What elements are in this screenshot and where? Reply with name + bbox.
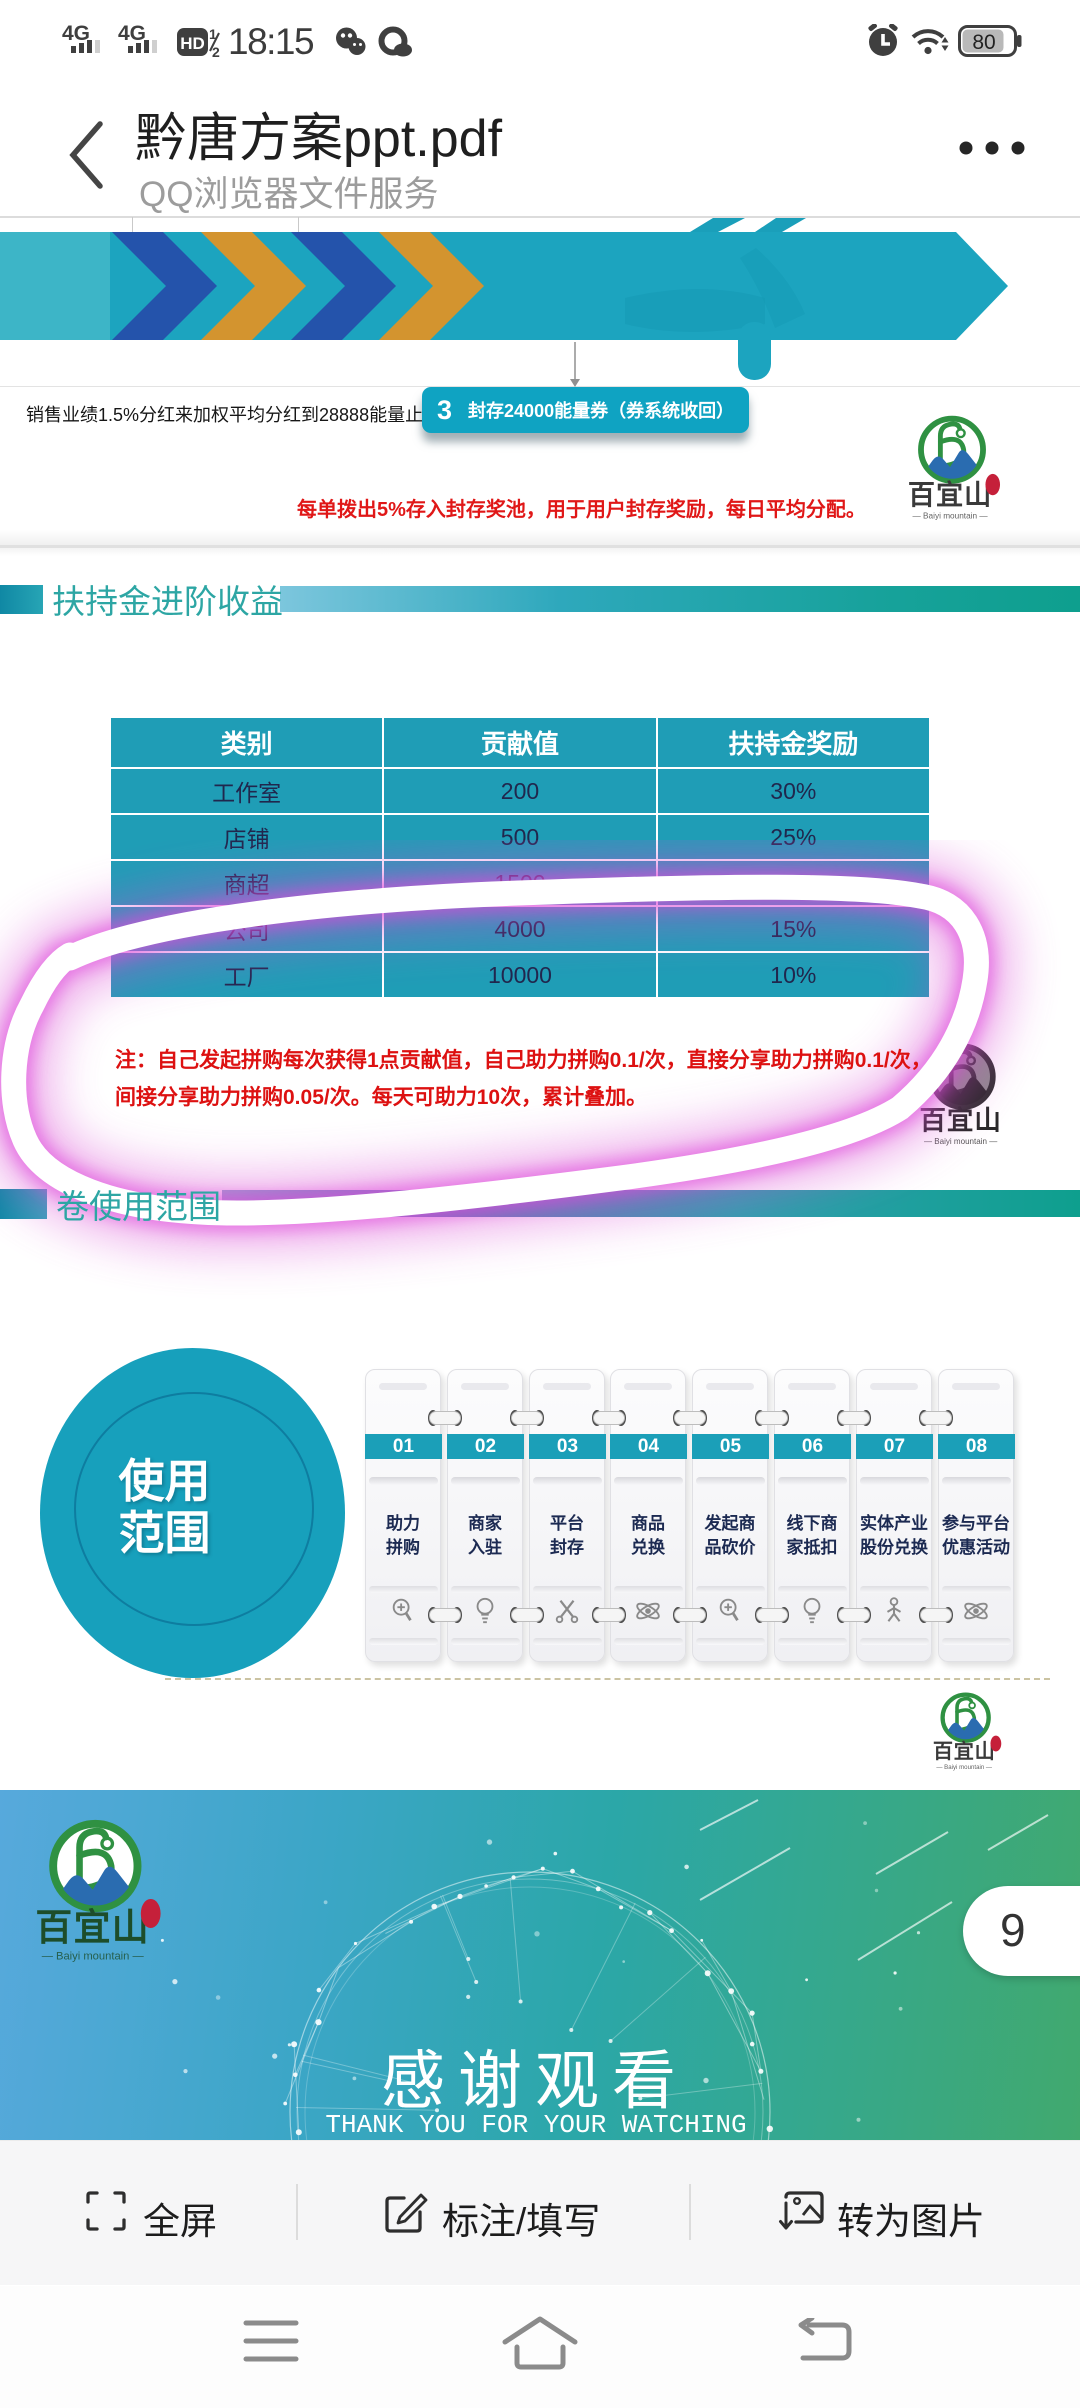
svg-text:2: 2 xyxy=(212,44,220,58)
svg-text:HD: HD xyxy=(180,34,205,53)
svg-text:— Baiyi mountain —: — Baiyi mountain — xyxy=(924,1137,998,1146)
svg-text:百宜山: 百宜山 xyxy=(933,1739,996,1763)
svg-text:— Baiyi mountain —: — Baiyi mountain — xyxy=(936,1764,993,1771)
svg-text:百宜山: 百宜山 xyxy=(919,1106,1001,1136)
svg-text:— Baiyi mountain —: — Baiyi mountain — xyxy=(913,512,989,521)
svg-text:百宜山: 百宜山 xyxy=(35,1907,150,1948)
svg-text:80: 80 xyxy=(972,31,995,54)
svg-text:百宜山: 百宜山 xyxy=(908,479,992,510)
svg-text:— Baiyi mountain —: — Baiyi mountain — xyxy=(42,1951,145,1963)
